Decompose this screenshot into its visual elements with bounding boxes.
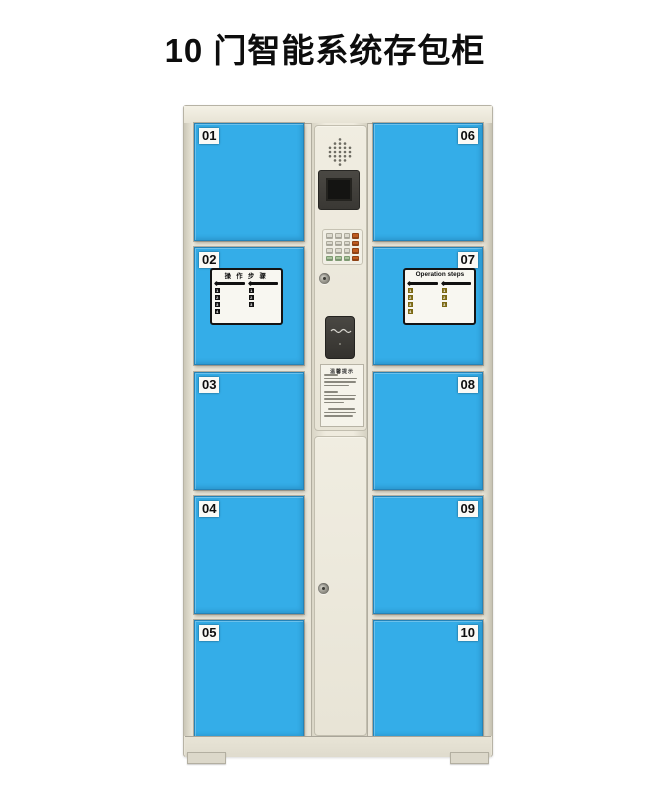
notice-title: 温馨提示 bbox=[330, 367, 354, 371]
keypad-key bbox=[335, 248, 342, 254]
keypad-key bbox=[344, 241, 351, 247]
sticker-columns: 1 2 3 4 bbox=[212, 281, 281, 316]
barcode-scanner bbox=[325, 316, 355, 359]
keypad-key bbox=[352, 248, 359, 254]
step-item: 1 bbox=[249, 288, 279, 293]
cabinet-foot-right bbox=[450, 752, 489, 764]
door-05: 05 bbox=[194, 620, 304, 738]
door-03: 03 bbox=[194, 372, 304, 490]
keypad-key bbox=[326, 241, 333, 247]
keypad-key bbox=[344, 233, 351, 239]
keypad-key bbox=[352, 241, 359, 247]
keypad-key bbox=[352, 256, 359, 262]
keypad-key bbox=[352, 233, 359, 239]
cabinet-top-frame bbox=[184, 106, 492, 124]
operation-steps-sticker-en: Operation steps 1 2 3 bbox=[403, 268, 476, 325]
step-number-badge: 3 bbox=[249, 302, 254, 307]
step-number-badge: 1 bbox=[249, 288, 254, 293]
step-item: 2 bbox=[442, 295, 472, 300]
step-item: 2 bbox=[215, 295, 245, 300]
step-item: 1 bbox=[408, 288, 438, 293]
step-item: 3 bbox=[215, 302, 245, 307]
door-number-label: 04 bbox=[199, 501, 219, 517]
door-number-label: 05 bbox=[199, 625, 219, 641]
column-header-bar bbox=[249, 282, 279, 285]
keypad-key bbox=[326, 256, 333, 262]
door-number-label: 07 bbox=[458, 252, 478, 268]
step-number-badge: 4 bbox=[408, 309, 413, 314]
door-10: 10 bbox=[373, 620, 483, 738]
door-02: 02 操 作 步 骤 1 2 bbox=[194, 247, 304, 365]
sticker-title-row: Operation steps bbox=[405, 271, 474, 281]
product-image: 10 门智能系统存包柜 01 02 操 作 步 骤 1 bbox=[0, 0, 650, 790]
step-number-badge: 1 bbox=[408, 288, 413, 293]
step-number-badge: 3 bbox=[442, 302, 447, 307]
keypad bbox=[322, 229, 363, 265]
keypad-key bbox=[335, 256, 342, 262]
cabinet-right-frame bbox=[482, 123, 492, 736]
step-number-badge: 1 bbox=[442, 288, 447, 293]
keyhole-icon bbox=[318, 583, 329, 594]
step-number-badge: 2 bbox=[442, 295, 447, 300]
door-06: 06 bbox=[373, 123, 483, 241]
door-04: 04 bbox=[194, 496, 304, 614]
lcd-screen-glass bbox=[326, 178, 352, 201]
door-09: 09 bbox=[373, 496, 483, 614]
cabinet-base bbox=[185, 736, 491, 757]
sticker-column-store: 1 2 3 4 bbox=[408, 281, 438, 316]
sticker-column-store: 1 2 3 4 bbox=[215, 281, 245, 316]
step-item: 1 bbox=[442, 288, 472, 293]
sticker-title-row: 操 作 步 骤 bbox=[212, 271, 281, 281]
door-number-label: 09 bbox=[458, 501, 478, 517]
step-number-badge: 3 bbox=[408, 302, 413, 307]
step-number-badge: 3 bbox=[215, 302, 220, 307]
column-header-bar bbox=[442, 282, 472, 285]
locker-cabinet: 01 02 操 作 步 骤 1 2 bbox=[183, 105, 493, 757]
sticker-column-retrieve: 1 2 3 bbox=[249, 281, 279, 316]
step-item: 3 bbox=[408, 302, 438, 307]
sticker-column-retrieve: 1 2 3 bbox=[442, 281, 472, 316]
door-number-label: 01 bbox=[199, 128, 219, 144]
keypad-key bbox=[326, 233, 333, 239]
sticker-columns: 1 2 3 4 bbox=[405, 281, 474, 316]
door-number-label: 10 bbox=[458, 625, 478, 641]
speaker-icon bbox=[323, 137, 357, 172]
cabinet-foot-left bbox=[187, 752, 226, 764]
keyhole-icon bbox=[319, 273, 330, 284]
column-header-bar bbox=[215, 282, 245, 285]
step-item: 2 bbox=[408, 295, 438, 300]
step-item: 3 bbox=[442, 302, 472, 307]
step-item: 1 bbox=[215, 288, 245, 293]
step-item: 4 bbox=[408, 309, 438, 314]
notice-title-row: 温馨提示 bbox=[324, 367, 360, 374]
step-number-badge: 2 bbox=[408, 295, 413, 300]
door-number-label: 02 bbox=[199, 252, 219, 268]
keypad-key bbox=[344, 256, 351, 262]
scanner-lens-dot bbox=[339, 343, 341, 345]
step-item: 2 bbox=[249, 295, 279, 300]
step-item: 3 bbox=[249, 302, 279, 307]
door-number-label: 06 bbox=[458, 128, 478, 144]
door-01: 01 bbox=[194, 123, 304, 241]
cabinet-left-frame bbox=[184, 123, 194, 736]
column-header-bar bbox=[408, 282, 438, 285]
step-number-badge: 1 bbox=[215, 288, 220, 293]
keypad-key bbox=[326, 248, 333, 254]
door-number-label: 03 bbox=[199, 377, 219, 393]
door-number-label: 08 bbox=[458, 377, 478, 393]
page-title: 10 门智能系统存包柜 bbox=[0, 24, 650, 72]
sticker-title: 操 作 步 骤 bbox=[225, 271, 268, 277]
lcd-display bbox=[318, 170, 360, 210]
step-number-badge: 2 bbox=[215, 295, 220, 300]
door-07: 07 Operation steps 1 2 bbox=[373, 247, 483, 365]
keypad-key bbox=[335, 233, 342, 239]
sticker-title: Operation steps bbox=[415, 271, 464, 277]
step-item: 4 bbox=[215, 309, 245, 314]
keypad-key bbox=[344, 248, 351, 254]
keypad-key bbox=[335, 241, 342, 247]
step-number-badge: 2 bbox=[249, 295, 254, 300]
operation-steps-sticker-cn: 操 作 步 骤 1 2 3 bbox=[210, 268, 283, 325]
door-08: 08 bbox=[373, 372, 483, 490]
step-number-badge: 4 bbox=[215, 309, 220, 314]
notice-sticker: 温馨提示 bbox=[320, 364, 364, 427]
control-column: 温馨提示 bbox=[311, 123, 368, 738]
